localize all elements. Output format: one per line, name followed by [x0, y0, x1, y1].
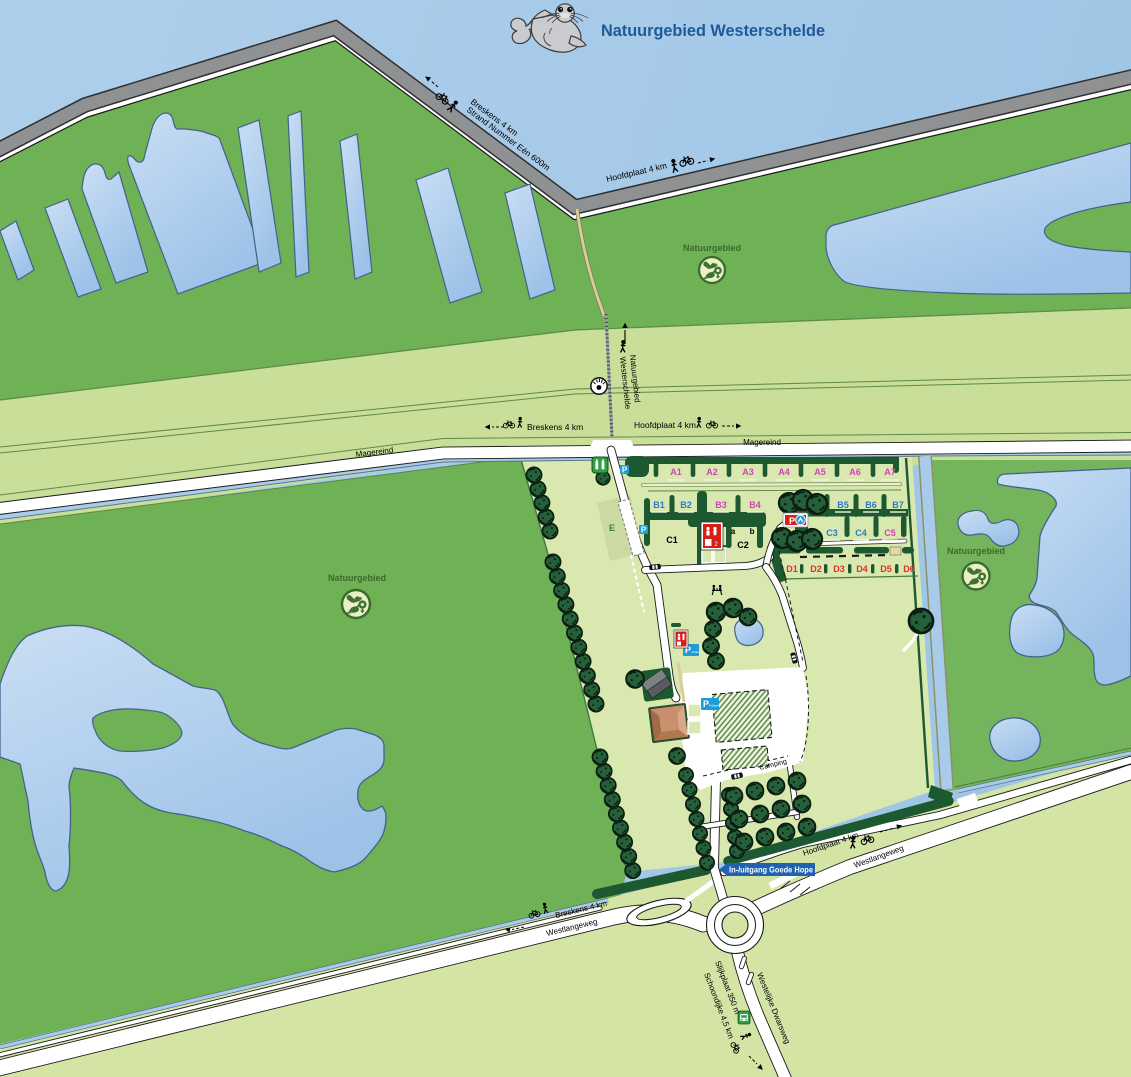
- svg-text:E: E: [609, 523, 615, 533]
- svg-text:Chalet: Chalet: [691, 650, 700, 654]
- svg-text:A7: A7: [884, 467, 896, 477]
- svg-text:C2: C2: [737, 540, 749, 550]
- svg-text:A6: A6: [849, 467, 861, 477]
- svg-text:P: P: [622, 465, 628, 474]
- svg-text:P: P: [641, 525, 647, 534]
- svg-text:D1: D1: [786, 564, 798, 574]
- svg-text:B6: B6: [865, 500, 877, 510]
- svg-text:Natuurgebied: Natuurgebied: [328, 573, 386, 583]
- svg-text:Magereind: Magereind: [743, 438, 781, 447]
- svg-text:B2: B2: [680, 500, 692, 510]
- svg-text:C4: C4: [855, 528, 867, 538]
- svg-text:Natuurgebied: Natuurgebied: [683, 243, 741, 253]
- svg-text:Natuurgebied: Natuurgebied: [947, 546, 1005, 556]
- svg-text:B5: B5: [837, 500, 849, 510]
- svg-text:B4: B4: [749, 500, 761, 510]
- svg-text:C3: C3: [826, 528, 838, 538]
- svg-text:D3: D3: [833, 564, 845, 574]
- svg-text:B1: B1: [653, 500, 665, 510]
- svg-text:a: a: [731, 527, 736, 536]
- svg-text:B7: B7: [892, 500, 904, 510]
- svg-text:b: b: [750, 527, 755, 536]
- svg-text:A3: A3: [742, 467, 754, 477]
- svg-text:B3: B3: [715, 500, 727, 510]
- svg-text:D5: D5: [880, 564, 892, 574]
- svg-text:C1: C1: [666, 535, 678, 545]
- svg-text:In-/uitgang Goede Hope: In-/uitgang Goede Hope: [729, 865, 813, 875]
- svg-text:D2: D2: [810, 564, 822, 574]
- svg-text:Hoofdplaat 4 km: Hoofdplaat 4 km: [634, 420, 696, 430]
- svg-text:P: P: [789, 516, 795, 526]
- svg-text:A1: A1: [670, 467, 682, 477]
- svg-text:D4: D4: [856, 564, 868, 574]
- svg-text:Breskens 4 km: Breskens 4 km: [527, 422, 583, 432]
- svg-text:D6: D6: [903, 564, 915, 574]
- svg-text:A5: A5: [814, 467, 826, 477]
- svg-text:Natuurgebied Westerschelde: Natuurgebied Westerschelde: [601, 21, 825, 40]
- svg-text:Polderh.: Polderh.: [709, 704, 720, 708]
- svg-text:C5: C5: [884, 528, 896, 538]
- svg-text:A4: A4: [778, 467, 790, 477]
- svg-text:A2: A2: [706, 467, 718, 477]
